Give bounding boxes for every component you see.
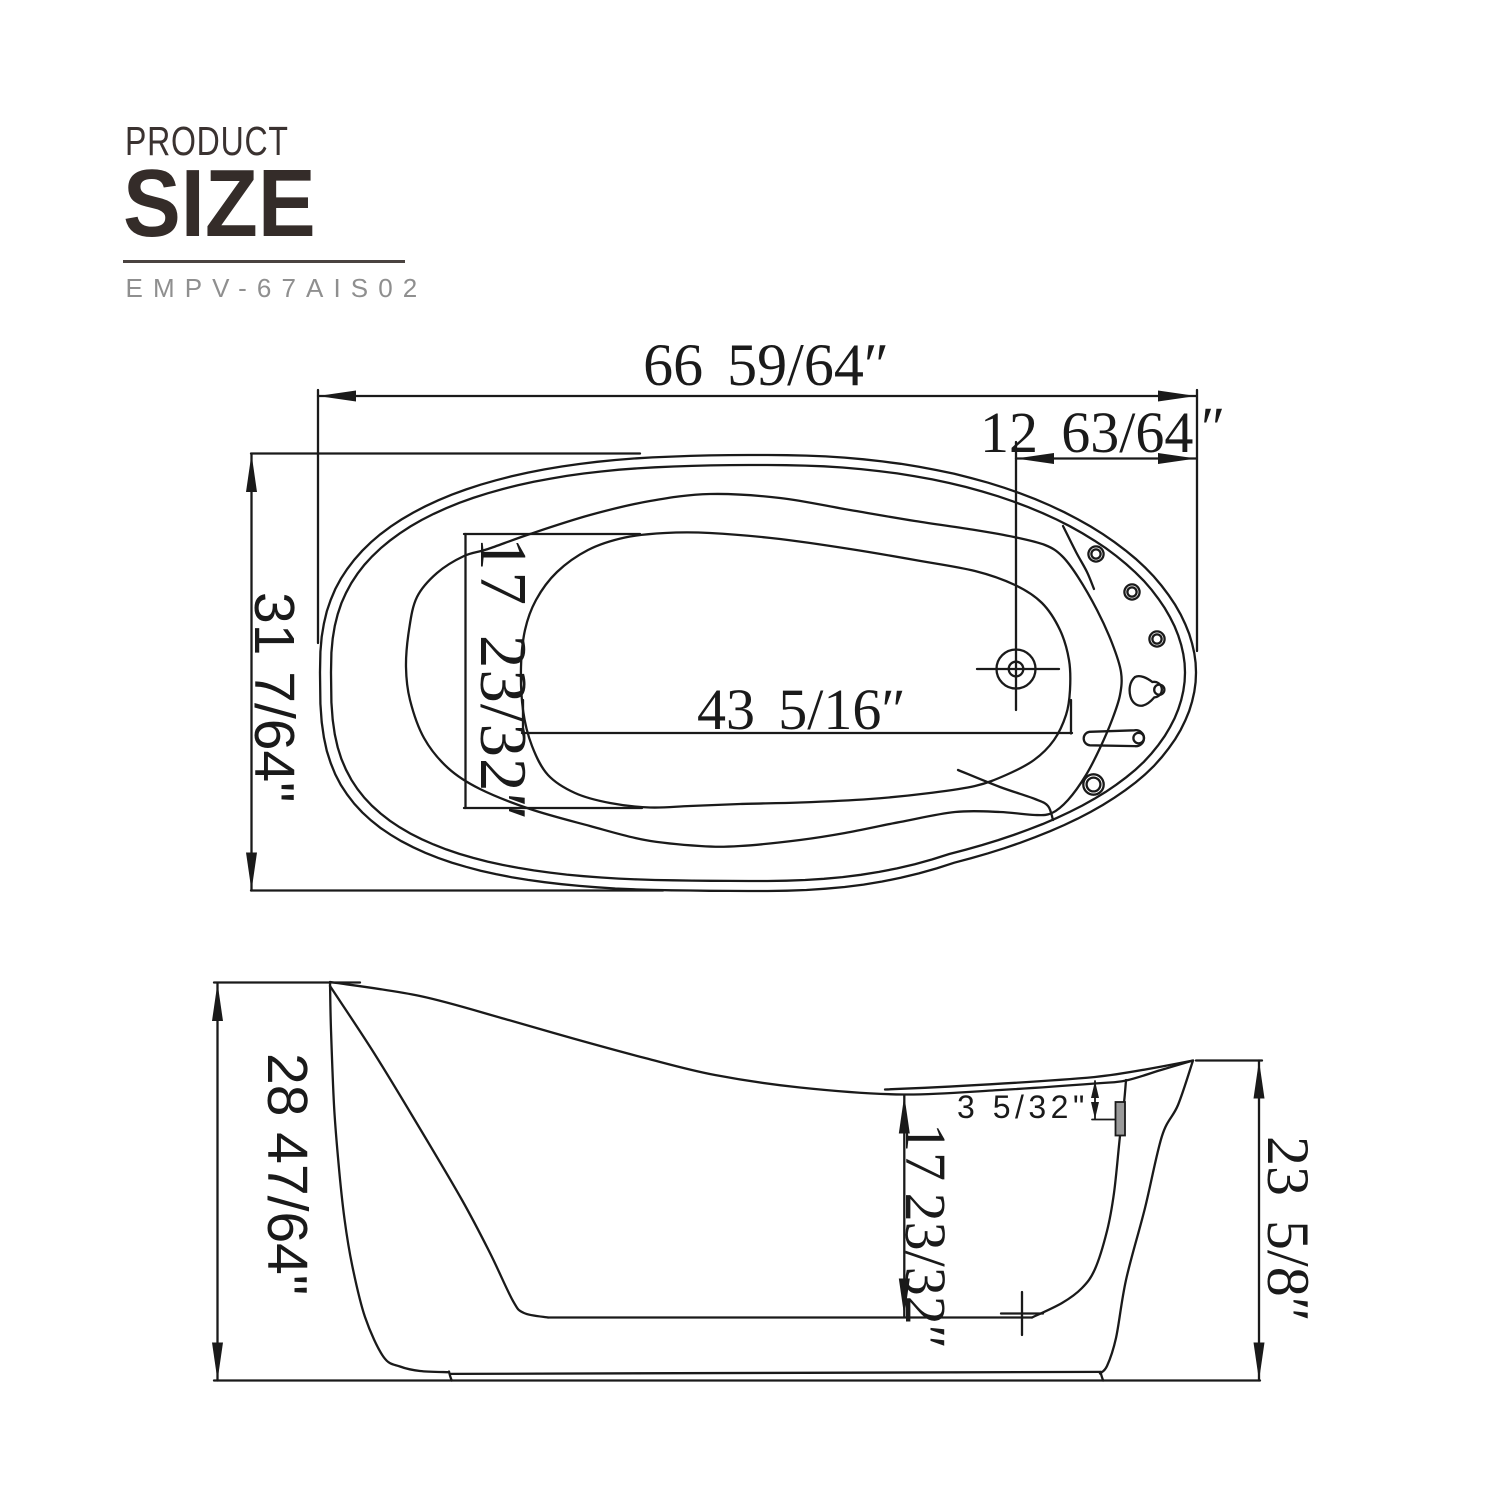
svg-text:66 59/64″: 66 59/64″ — [643, 332, 889, 398]
svg-text:17 23/32″: 17 23/32″ — [466, 537, 540, 821]
svg-text:SIZE: SIZE — [123, 150, 316, 257]
svg-text:EMPV-67AIS02: EMPV-67AIS02 — [126, 273, 428, 303]
svg-text:28 47/64": 28 47/64" — [255, 1053, 319, 1295]
svg-text:43 5/16″: 43 5/16″ — [697, 677, 906, 742]
svg-text:″: ″ — [1201, 395, 1225, 460]
svg-text:17 23/32″: 17 23/32″ — [893, 1123, 958, 1349]
svg-text:23 5/8″: 23 5/8″ — [1255, 1136, 1321, 1322]
svg-text:3 5/32": 3 5/32" — [957, 1089, 1089, 1125]
svg-text:31 7/64": 31 7/64" — [242, 592, 306, 802]
svg-text:12 63/64: 12 63/64 — [980, 400, 1193, 465]
